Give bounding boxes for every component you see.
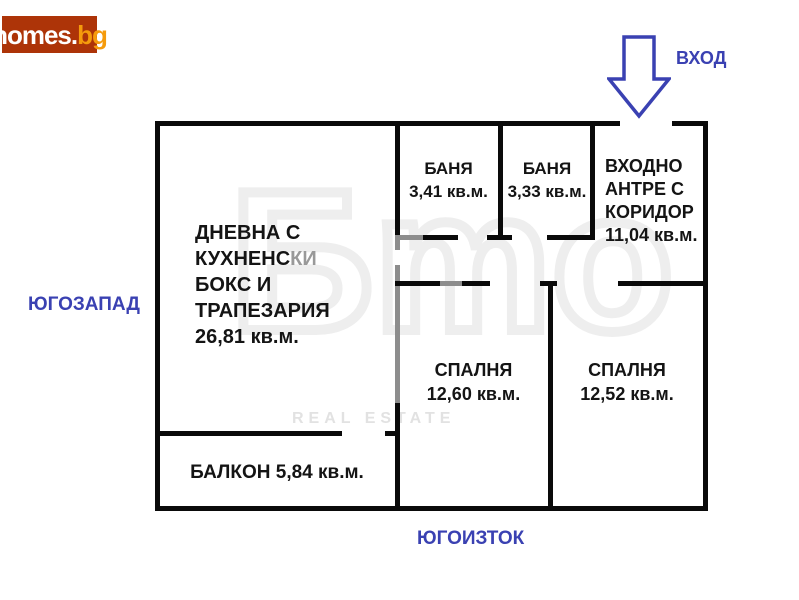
bedroom2-label: СПАЛНЯ 12,52 кв.м.	[551, 358, 703, 406]
hall-line1: ВХОДНО	[605, 155, 697, 178]
floorplan-page: homes.bg ВХОД ЮГОЗАПАД ЮГОИЗТОК Бmo REAL…	[0, 0, 799, 600]
wall-balcony-top	[155, 431, 342, 436]
bedroom2-area: 12,52 кв.м.	[551, 382, 703, 406]
living-line3: БОКС И	[195, 274, 271, 296]
wall-living-right-stub-b	[395, 265, 400, 281]
bedroom2-name: СПАЛНЯ	[551, 358, 703, 382]
bedroom1-name: СПАЛНЯ	[397, 358, 550, 382]
bathroom1-name: БАНЯ	[397, 157, 500, 180]
homes-bg-logo: homes.bg	[2, 16, 97, 53]
hall-line3: КОРИДОР	[605, 201, 697, 224]
wall-bath-bottom-mid	[487, 235, 512, 240]
wall-balcony-top-stub	[385, 431, 397, 436]
bathroom2-area: 3,33 кв.м.	[503, 180, 591, 203]
bathroom1-area: 3,41 кв.м.	[397, 180, 500, 203]
bathroom2-name: БАНЯ	[503, 157, 591, 180]
southwest-label: ЮГОЗАПАД	[28, 294, 140, 316]
wall-bath1-bottom-b	[423, 235, 458, 240]
wall-bedroom1-left-lower	[395, 403, 400, 511]
bedroom1-area: 12,60 кв.м.	[397, 382, 550, 406]
southeast-label: ЮГОИЗТОК	[417, 528, 524, 550]
wall-bedroom-divider-hook	[540, 281, 557, 286]
bedroom1-label: СПАЛНЯ 12,60 кв.м.	[397, 358, 550, 406]
wall-outer-right	[703, 121, 708, 511]
living-area: 26,81 кв.м.	[195, 326, 299, 348]
watermark-caption: REAL ESTATE	[292, 410, 455, 428]
entrance-arrow-icon	[607, 35, 671, 119]
wall-bedroom1-top-c	[462, 281, 490, 286]
living-line1: ДНЕВНА С	[195, 222, 300, 244]
wall-outer-bottom	[155, 506, 708, 511]
hall-area: 11,04 кв.м.	[605, 224, 697, 247]
bathroom1-label: БАНЯ 3,41 кв.м.	[397, 157, 500, 203]
balcony-text: БАЛКОН 5,84 кв.м.	[157, 461, 397, 485]
logo-brand-text: homes	[0, 22, 71, 48]
wall-living-right-stub-a	[395, 240, 400, 250]
wall-bath2-bottom	[547, 235, 595, 240]
wall-bedroom1-top-b	[440, 281, 462, 286]
living-line4: ТРАПЕЗАРИЯ	[195, 300, 330, 322]
wall-outer-left	[155, 121, 160, 511]
hall-line2: АНТРЕ С	[605, 178, 697, 201]
living-line2: КУХНЕНС	[195, 248, 290, 270]
logo-tld-text: bg	[77, 22, 107, 48]
living-line2-faded: КИ	[290, 248, 317, 270]
living-room-label: ДНЕВНА С КУХНЕНСКИ БОКС И ТРАПЕЗАРИЯ 26,…	[195, 220, 330, 350]
bathroom2-label: БАНЯ 3,33 кв.м.	[503, 157, 591, 203]
wall-bath1-bottom-a	[395, 235, 423, 240]
entrance-label: ВХОД	[676, 48, 726, 69]
wall-bedroom1-top-a	[395, 281, 440, 286]
wall-outer-top-left	[155, 121, 620, 126]
wall-bedroom2-top	[618, 281, 708, 286]
entrance-hall-label: ВХОДНО АНТРЕ С КОРИДОР 11,04 кв.м.	[605, 155, 697, 247]
balcony-label: БАЛКОН 5,84 кв.м.	[157, 461, 397, 485]
